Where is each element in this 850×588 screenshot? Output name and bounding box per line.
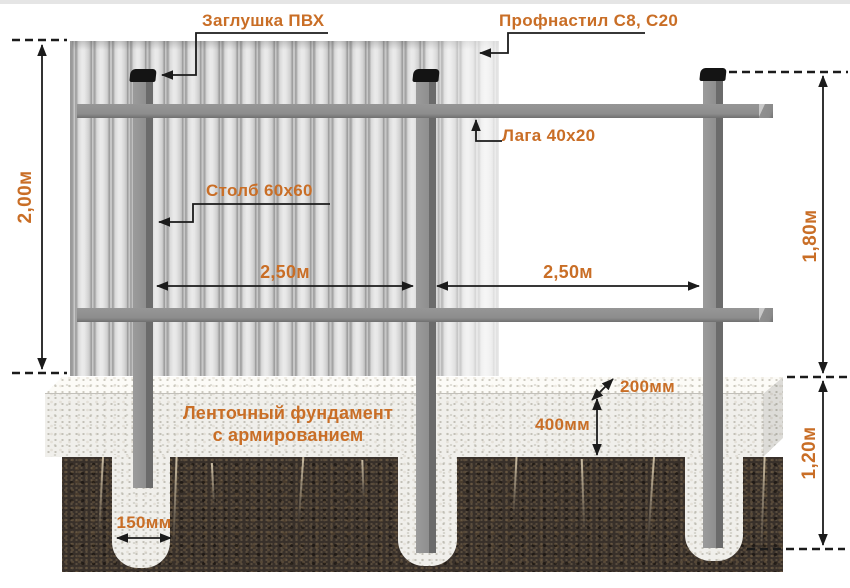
label-foundation-line1: Ленточный фундамент	[178, 402, 398, 424]
dim-label-foundation-top-width: 200мм	[620, 377, 675, 397]
label-sheet: Профнастил С8, С20	[499, 11, 678, 31]
dim-label-span-right: 2,50м	[498, 262, 638, 283]
root-streak	[172, 457, 177, 547]
leader-sheet-label	[480, 33, 645, 53]
post-cap-2	[412, 69, 439, 82]
label-rail: Лага 40x20	[502, 126, 595, 146]
root-streak	[361, 460, 364, 500]
label-post: Столб 60x60	[206, 181, 313, 201]
dim-label-foundation-depth: 1,20м	[799, 426, 821, 479]
label-cap: Заглушка ПВХ	[202, 11, 324, 31]
post-cap-1	[129, 69, 156, 82]
root-streak	[647, 457, 655, 543]
root-streak	[298, 457, 305, 523]
label-foundation: Ленточный фундамент с армированием	[178, 402, 398, 446]
root-streak	[98, 457, 104, 535]
dim-label-fence-height: 1,80м	[800, 209, 822, 262]
dim-label-pile-width: 150мм	[112, 513, 176, 533]
root-streak	[581, 459, 586, 531]
top-rail	[77, 104, 773, 118]
root-streak	[512, 457, 517, 515]
root-streak	[211, 463, 215, 507]
post-1	[133, 81, 153, 488]
label-foundation-line2: с армированием	[178, 424, 398, 446]
dim-label-foundation-face-height: 400мм	[520, 415, 590, 435]
root-streak	[760, 457, 765, 549]
post-cap-3	[699, 68, 726, 81]
dim-label-total-height: 2,00м	[15, 170, 37, 223]
dim-label-span-left: 2,50м	[215, 262, 355, 283]
top-border-band	[0, 0, 850, 4]
bottom-rail	[77, 308, 773, 322]
fence-construction-diagram: Заглушка ПВХ Профнастил С8, С20 Лага 40x…	[0, 0, 850, 588]
